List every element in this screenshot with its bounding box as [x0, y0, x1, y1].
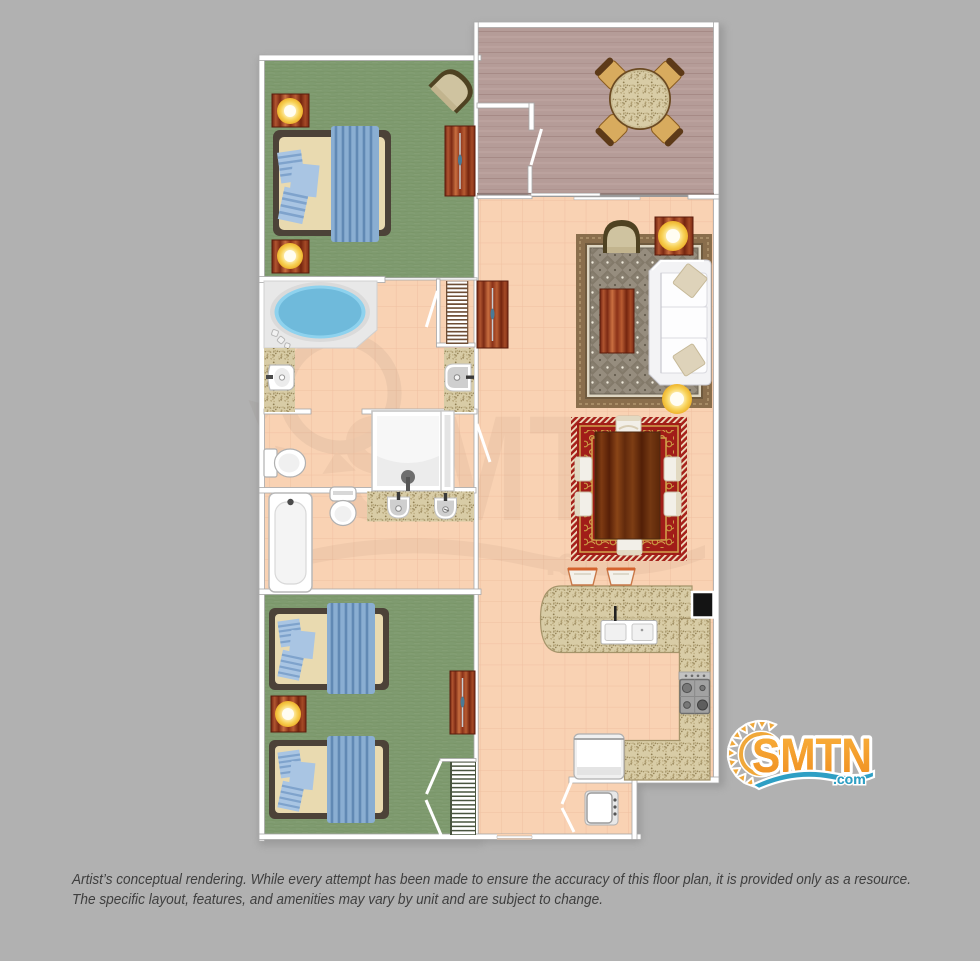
svg-text:The specific layout, features,: The specific layout, features, and ameni…	[72, 892, 603, 908]
svg-text:Artist’s conceptual rendering.: Artist’s conceptual rendering. While eve…	[71, 872, 911, 888]
svg-text:.com: .com	[833, 771, 866, 787]
